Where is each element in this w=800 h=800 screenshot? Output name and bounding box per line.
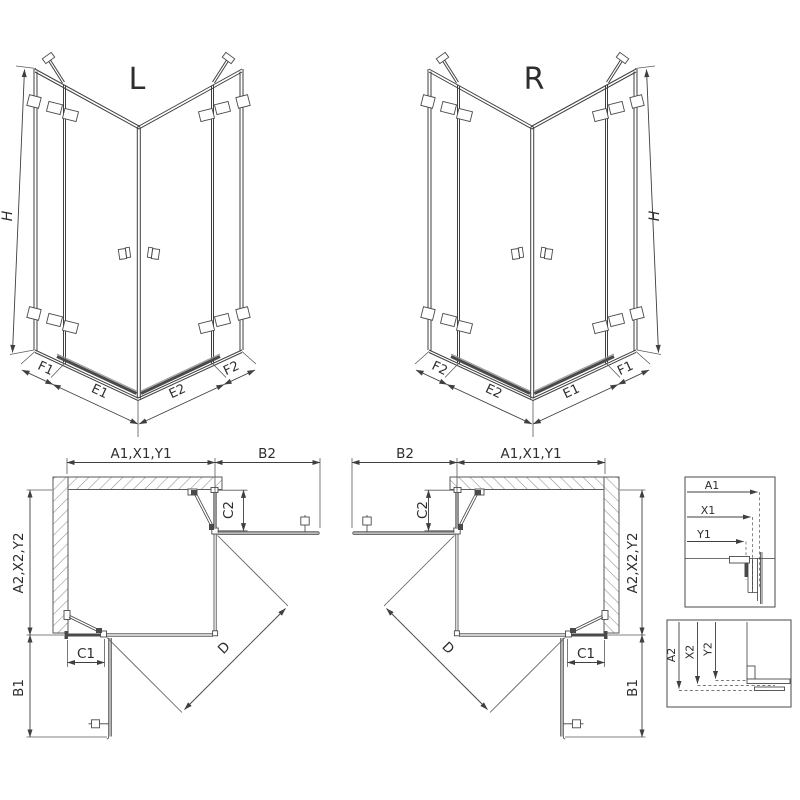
plan-right-diagonal-label: D [438,639,457,658]
plan-right-b1-label: B1 [625,679,641,697]
plan-left-b2-label: B2 [258,446,276,462]
plan-view-left [27,458,321,739]
front-left-title: L [129,62,146,97]
plan-view-right [352,458,646,739]
front-right-height-label: H [647,210,663,221]
front-left-dim-e1: E1 [89,382,110,403]
detail-top-y1-label: Y1 [696,528,711,541]
shower-enclosure-technical-drawing: L H F1 E1 E2 F2 R H F2 E2 E1 F1 A1,X1,Y1… [0,0,800,800]
plan-right-b2-label: B2 [396,446,414,462]
front-left-dim-e2: E2 [167,382,188,403]
detail-view-bottom [667,620,791,707]
plan-right-depth-label: A2,X2,Y2 [625,532,641,593]
front-view-left [10,52,256,437]
plan-left-b1-label: B1 [11,679,27,697]
plan-left-c1-label: C1 [77,646,95,662]
detail-bottom-x2-label: X2 [684,645,697,660]
front-right-dim-e2: E2 [483,382,504,403]
detail-top-x1-label: X1 [701,504,716,517]
detail-bottom-a2-label: A2 [665,648,678,663]
plan-right-c1-label: C1 [577,646,595,662]
detail-view-top [685,477,775,607]
front-view-right [415,52,661,437]
detail-bottom-y2-label: Y2 [702,642,715,657]
plan-left-depth-label: A2,X2,Y2 [11,532,27,593]
plan-left-diagonal-label: D [215,639,234,658]
detail-top-a1-label: A1 [705,479,720,492]
front-right-title: R [524,62,545,97]
plan-left-c2-label: C2 [221,501,237,519]
plan-right-width-label: A1,X1,Y1 [500,446,561,462]
plan-left-width-label: A1,X1,Y1 [110,446,171,462]
front-left-height-label: H [0,210,16,221]
plan-right-c2-label: C2 [415,501,431,519]
drawing-canvas: L H F1 E1 E2 F2 R H F2 E2 E1 F1 A1,X1,Y1… [0,0,800,800]
front-right-dim-e1: E1 [561,382,582,403]
